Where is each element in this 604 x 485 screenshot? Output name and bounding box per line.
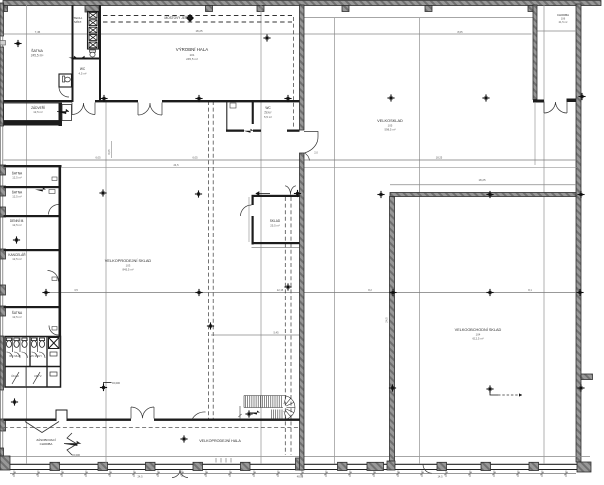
svg-text:ŠATNA: ŠATNA: [31, 48, 43, 53]
svg-text:8,05: 8,05: [457, 30, 463, 34]
svg-text:VÝROBNÍ HALA: VÝROBNÍ HALA: [176, 47, 209, 52]
svg-text:CHODBA: CHODBA: [557, 13, 569, 17]
svg-text:24,5: 24,5: [137, 475, 143, 479]
svg-text:245,5 m²: 245,5 m²: [31, 54, 44, 58]
svg-text:±0,000: ±0,000: [72, 453, 80, 457]
svg-text:5,45: 5,45: [273, 331, 279, 335]
svg-text:12,5 m²: 12,5 m²: [33, 110, 43, 114]
svg-text:598,5 m²: 598,5 m²: [384, 128, 395, 132]
svg-text:18,25: 18,25: [479, 178, 486, 182]
svg-text:21,5 m²: 21,5 m²: [559, 20, 568, 24]
svg-text:MOSTOVÝ JEŘÁB: MOSTOVÝ JEŘÁB: [164, 15, 191, 20]
svg-text:WC: WC: [265, 106, 271, 110]
svg-text:3,5: 3,5: [74, 288, 78, 292]
svg-text:12,15: 12,15: [277, 288, 284, 292]
svg-text:6,05: 6,05: [107, 149, 111, 155]
svg-text:12,5 m²: 12,5 m²: [12, 315, 22, 319]
svg-text:6,05: 6,05: [95, 156, 101, 160]
svg-text:SKLAD: SKLAD: [270, 219, 281, 223]
svg-text:UMÝV.: UMÝV.: [34, 374, 42, 378]
svg-text:12,5 m²: 12,5 m²: [12, 223, 22, 227]
svg-text:ŽENY: ŽENY: [264, 110, 272, 115]
svg-text:106: 106: [561, 17, 566, 21]
svg-text:12,5 m²: 12,5 m²: [12, 195, 22, 199]
svg-text:24,5: 24,5: [385, 317, 389, 323]
svg-text:18,25: 18,25: [436, 156, 443, 160]
svg-text:48,05: 48,05: [297, 475, 304, 479]
svg-text:12,5 m²: 12,5 m²: [12, 257, 22, 261]
svg-text:845,5 m²: 845,5 m²: [122, 268, 133, 272]
svg-text:VELKOSKLAD: VELKOSKLAD: [377, 118, 403, 123]
svg-text:VELKOPRODEJNÍ SKLAD: VELKOPRODEJNÍ SKLAD: [105, 258, 152, 263]
svg-text:8,1: 8,1: [528, 288, 532, 292]
svg-text:4,5 m²: 4,5 m²: [79, 72, 87, 76]
svg-text:VELKOOBCHODNÍ SKLAD: VELKOOBCHODNÍ SKLAD: [455, 328, 502, 332]
svg-text:25,5 m²: 25,5 m²: [270, 224, 280, 228]
svg-text:VELKOPRODEJNÍ HALA: VELKOPRODEJNÍ HALA: [199, 439, 241, 443]
svg-text:2,0: 2,0: [314, 151, 318, 155]
svg-text:612,5 m²: 612,5 m²: [472, 337, 483, 341]
svg-text:±0,000: ±0,000: [112, 381, 120, 385]
svg-text:8,2: 8,2: [368, 288, 372, 292]
svg-text:6,05: 6,05: [192, 156, 198, 160]
svg-text:WC: WC: [80, 67, 86, 71]
svg-text:7,45: 7,45: [35, 30, 41, 34]
svg-text:18,25: 18,25: [196, 29, 203, 33]
svg-text:MÍST.: MÍST.: [74, 20, 82, 24]
svg-text:14,5: 14,5: [437, 475, 443, 479]
svg-text:245,5 m²: 245,5 m²: [186, 57, 198, 61]
svg-text:24,5: 24,5: [173, 163, 179, 167]
svg-text:CHODBA: CHODBA: [40, 442, 53, 446]
svg-text:12,5 m²: 12,5 m²: [12, 176, 22, 180]
svg-text:5,5 m²: 5,5 m²: [264, 115, 272, 119]
